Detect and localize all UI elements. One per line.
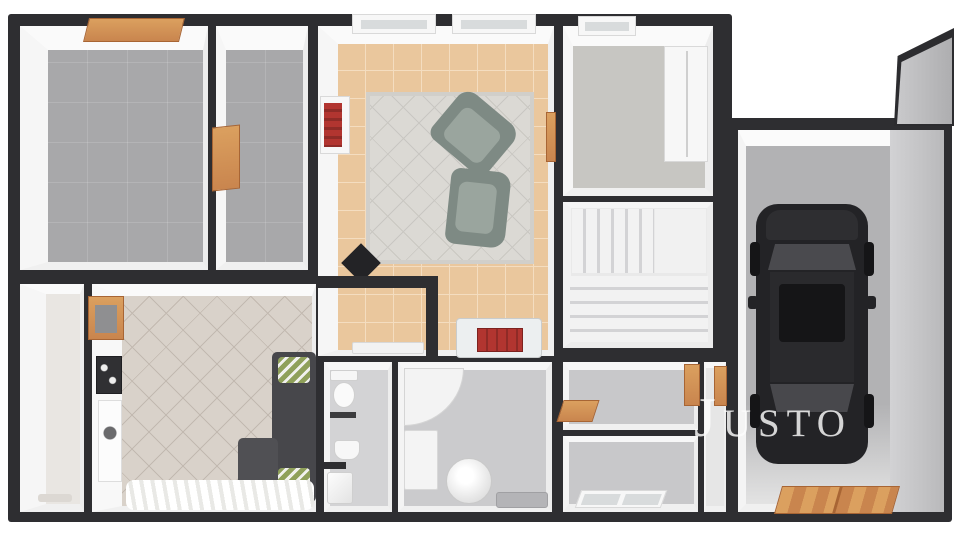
car-mirror-right (866, 296, 876, 309)
room-storage-closet-left (20, 284, 84, 512)
serving-hatch (88, 296, 124, 340)
stair-upper-flight (572, 209, 654, 273)
books-red (324, 103, 342, 147)
stair-lower-flight (570, 276, 708, 342)
wardrobe (664, 46, 708, 162)
wc-sink (334, 440, 360, 460)
bedroom-right-window (578, 16, 636, 36)
living-window-left (352, 14, 436, 34)
garage-door-split (832, 487, 842, 513)
bath-mat (496, 492, 548, 508)
window-glass (622, 494, 662, 505)
toilet-tank (330, 370, 358, 381)
pantry-wall-right (426, 276, 438, 358)
window-glass (585, 22, 629, 31)
closet-floor-object (38, 494, 72, 502)
watermark: Justo (678, 388, 868, 450)
car-windshield (768, 244, 856, 270)
living-right-door (546, 112, 556, 162)
toilet-bowl (333, 382, 355, 408)
floor-plan-canvas: Justo (0, 0, 960, 540)
wc-shelf (330, 412, 356, 418)
stair-landing (655, 209, 706, 273)
wc-wall-stub (324, 462, 346, 469)
car-mirror-left (748, 296, 758, 309)
window-glass (361, 20, 427, 29)
car-wheel-fl (750, 242, 760, 276)
bookshelf (320, 96, 350, 154)
wardrobe-divider (686, 51, 688, 157)
window-glass (461, 20, 527, 29)
garage-double-door (774, 486, 900, 514)
round-washer (446, 458, 492, 504)
hall-bench-red-slats (477, 328, 523, 352)
garage-right-wall-face (890, 130, 944, 512)
sofa-pillow-top (278, 357, 310, 383)
bedroom-middle-door (212, 125, 240, 192)
living-window-right (452, 14, 536, 34)
door-bottom-center-left (556, 400, 599, 422)
entry-door (83, 18, 185, 42)
white-fur-rug (126, 480, 314, 510)
bath-counter (404, 430, 438, 490)
pantry-wall-top (314, 276, 438, 288)
hatch-opening (95, 305, 117, 333)
pantry-bench (352, 342, 424, 354)
room-bedroom-top-left (20, 26, 208, 270)
armchair-cushion (455, 181, 498, 235)
basement-double-window (575, 490, 668, 508)
window-glass (581, 494, 621, 505)
armchair-2 (444, 167, 512, 249)
wall-art-dark (96, 356, 122, 394)
car-hood (766, 210, 858, 240)
car-sunroof (779, 284, 845, 342)
car-wheel-fr (864, 242, 874, 276)
hall-bench (456, 318, 542, 358)
wall-art-deer (98, 400, 122, 482)
wc-washer (327, 472, 353, 504)
